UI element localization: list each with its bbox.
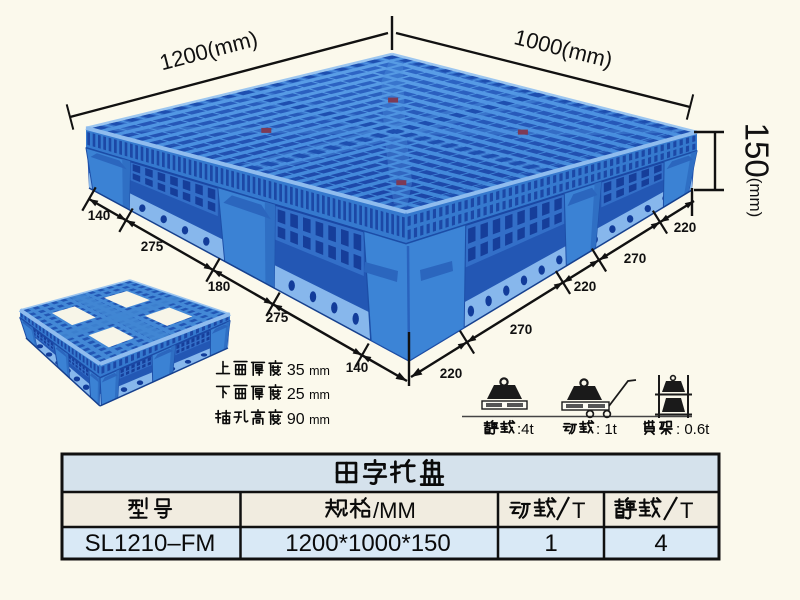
svg-text:270: 270 xyxy=(624,251,647,266)
svg-text:SL1210–FM: SL1210–FM xyxy=(85,530,216,557)
svg-text:270: 270 xyxy=(510,322,533,337)
svg-text:: 0.6t: : 0.6t xyxy=(676,421,710,438)
svg-text:: 1t: : 1t xyxy=(596,421,618,438)
svg-text:T: T xyxy=(572,498,585,523)
svg-text:220: 220 xyxy=(674,220,697,235)
svg-text:1200*1000*150: 1200*1000*150 xyxy=(285,530,451,557)
svg-text:140: 140 xyxy=(88,208,111,223)
svg-text:: 90 mm: : 90 mm xyxy=(278,411,330,428)
svg-text::4t: :4t xyxy=(517,421,535,438)
svg-text:275: 275 xyxy=(141,239,164,254)
svg-text:1200(mm): 1200(mm) xyxy=(157,26,260,75)
svg-text:220: 220 xyxy=(574,279,597,294)
svg-text:275: 275 xyxy=(266,310,289,325)
svg-text:: 25 mm: : 25 mm xyxy=(278,386,330,403)
svg-text:1: 1 xyxy=(544,530,557,557)
svg-text:/MM: /MM xyxy=(373,498,416,523)
svg-text:220: 220 xyxy=(440,366,463,381)
svg-text:4: 4 xyxy=(654,530,667,557)
svg-text:T: T xyxy=(680,498,693,523)
svg-text:180: 180 xyxy=(208,279,231,294)
svg-text:140: 140 xyxy=(346,360,369,375)
svg-text:150(mm): 150(mm) xyxy=(738,123,775,218)
svg-text:: 35 mm: : 35 mm xyxy=(278,362,330,379)
